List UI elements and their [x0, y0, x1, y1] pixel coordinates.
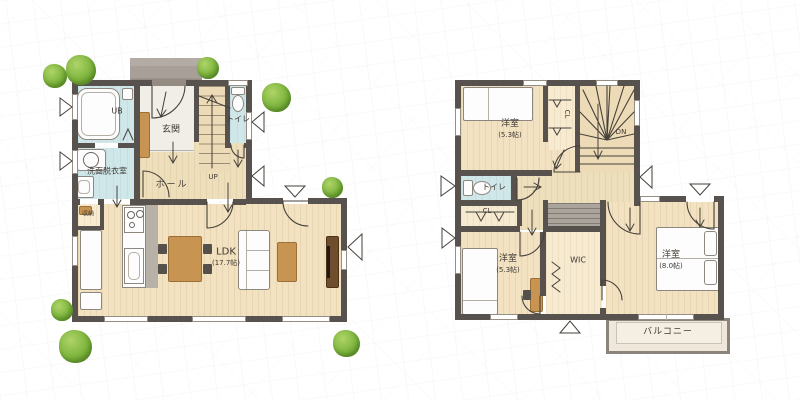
tree-icon — [333, 330, 360, 357]
tree-icon — [322, 177, 343, 198]
tree-icon — [51, 299, 73, 321]
hanger-symbols — [123, 100, 571, 292]
tree-icon — [59, 330, 92, 363]
annotation-overlay — [0, 0, 800, 400]
floorplan-canvas: UB 玄関 トイレ 洗面脱衣室 ホール UP 収納 LDK (17.7帖) — [0, 0, 800, 400]
tree-icon — [43, 64, 67, 88]
door-arcs-2f — [517, 146, 714, 314]
vent-triangles — [60, 98, 710, 333]
tree-icon — [197, 57, 219, 79]
tree-icon — [262, 83, 291, 112]
tree-icon — [66, 55, 96, 85]
